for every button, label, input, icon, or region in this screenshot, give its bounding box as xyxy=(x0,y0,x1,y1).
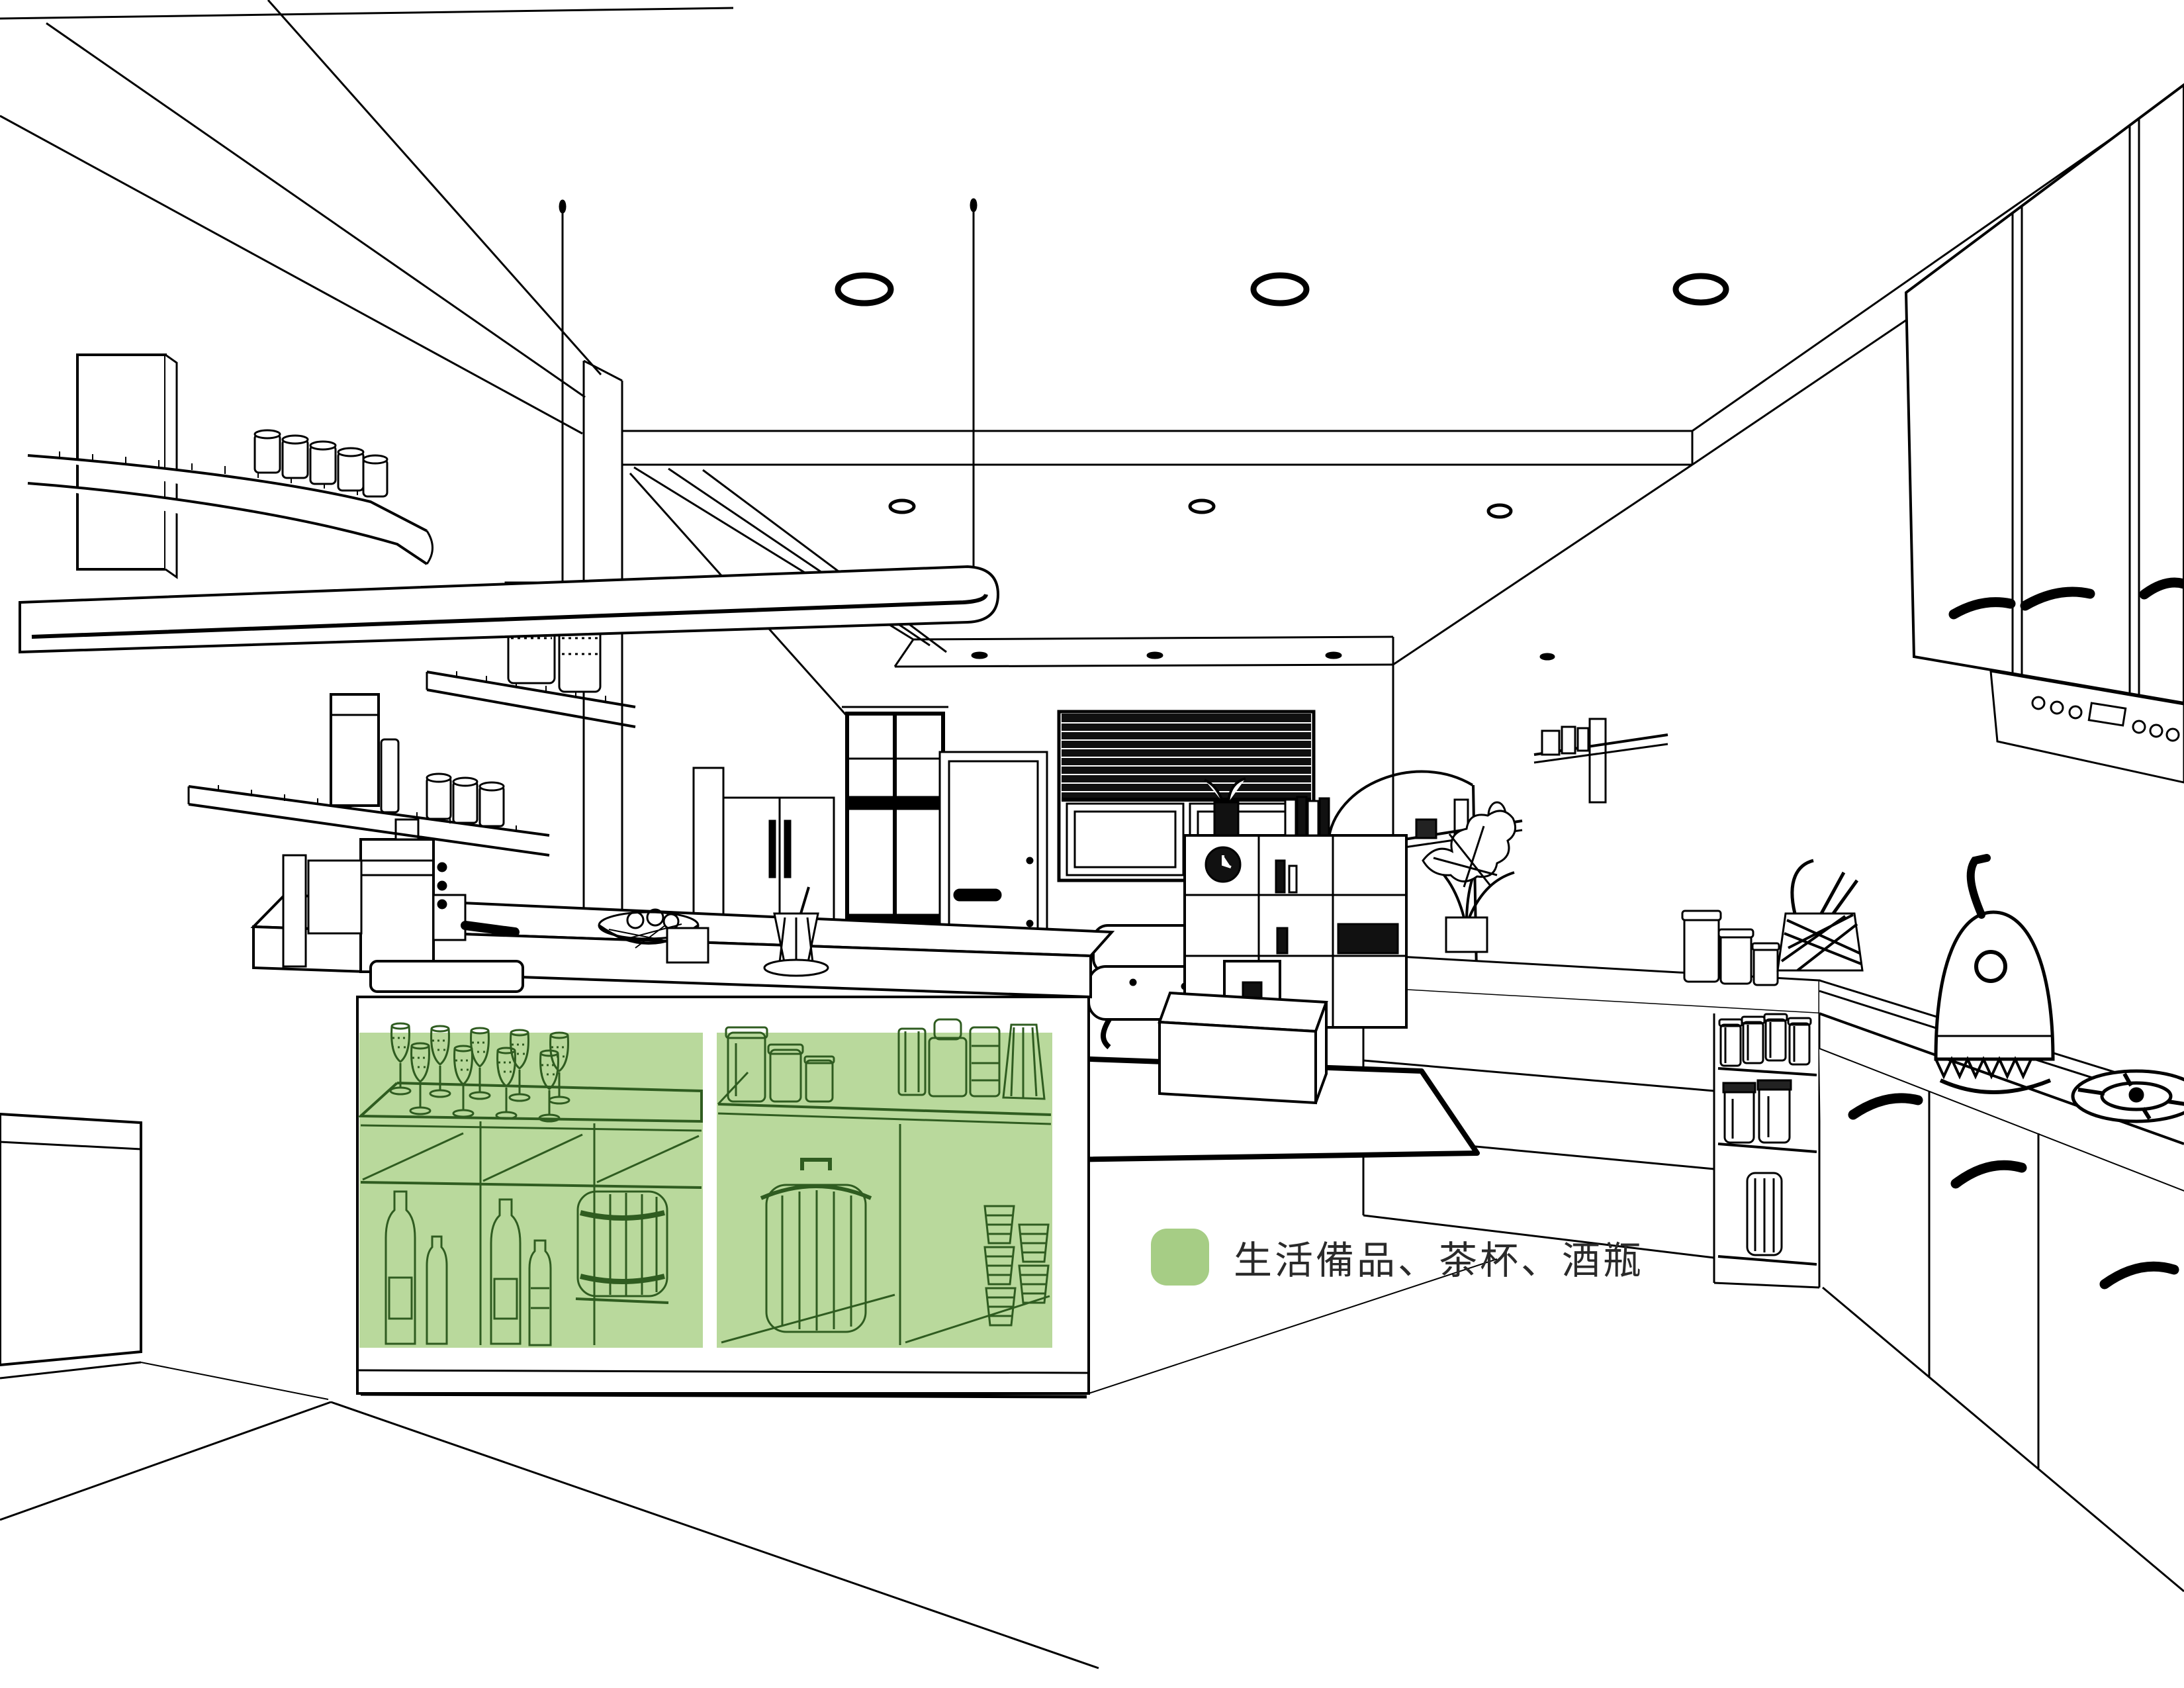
door-handle xyxy=(954,890,1001,900)
dome-kettle xyxy=(1936,858,2053,1092)
upper-cabinets xyxy=(1906,85,2184,703)
right-wall-shelf-upper xyxy=(1534,719,1668,802)
ceiling-light-icon xyxy=(1253,275,1306,303)
coffee-table xyxy=(1160,993,1326,1103)
legend-swatch xyxy=(1151,1229,1209,1286)
kitchen-perspective-drawing: 生活備品、茶杯、酒瓶 xyxy=(0,0,2184,1688)
wall-board xyxy=(308,861,361,933)
utensil xyxy=(1792,861,1813,914)
ceiling-light-icon xyxy=(972,653,987,658)
sofa-leg xyxy=(1103,1019,1109,1047)
legend-label: 生活備品、茶杯、酒瓶 xyxy=(1234,1239,1644,1282)
ceiling-light-icon xyxy=(1326,653,1341,658)
left-low-cabinet xyxy=(0,1114,141,1378)
storage-box xyxy=(1338,924,1398,953)
ceiling-light-icon xyxy=(1488,505,1511,517)
drip-tray xyxy=(371,961,523,992)
cereal-box xyxy=(331,694,379,806)
divider-shelf-unit xyxy=(1185,778,1406,1027)
ceiling-light-icon xyxy=(890,500,914,512)
small-appliance xyxy=(667,928,708,962)
counters xyxy=(1363,811,2184,1591)
ceiling-light-icon xyxy=(1190,500,1214,512)
ceiling-wall-junction-line xyxy=(0,8,733,19)
wire-basket xyxy=(1778,861,1862,970)
ceiling-light-icon xyxy=(838,275,891,303)
shelf-support xyxy=(283,855,306,966)
utensil xyxy=(1821,872,1857,914)
fridge-handle xyxy=(785,821,790,877)
kettle-handle xyxy=(1971,858,1987,915)
books xyxy=(1285,797,1329,835)
kitchen-line-drawing-page: 生活備品、茶杯、酒瓶 xyxy=(0,0,2184,1688)
right-wall-upper xyxy=(1404,85,2184,850)
fridge-handle xyxy=(770,821,775,877)
ceiling-light-icon xyxy=(1676,276,1726,303)
portafilter-handle xyxy=(465,925,515,932)
plant-pot xyxy=(1214,802,1238,835)
ceiling-light-icon xyxy=(1148,653,1162,658)
jar xyxy=(381,739,398,812)
ceiling-light-icon xyxy=(1541,654,1554,659)
gas-burner xyxy=(2073,1071,2184,1121)
upper-bracket-shelf xyxy=(28,355,433,577)
venetian-blind xyxy=(1062,714,1311,798)
counter-canisters xyxy=(1682,911,1779,985)
